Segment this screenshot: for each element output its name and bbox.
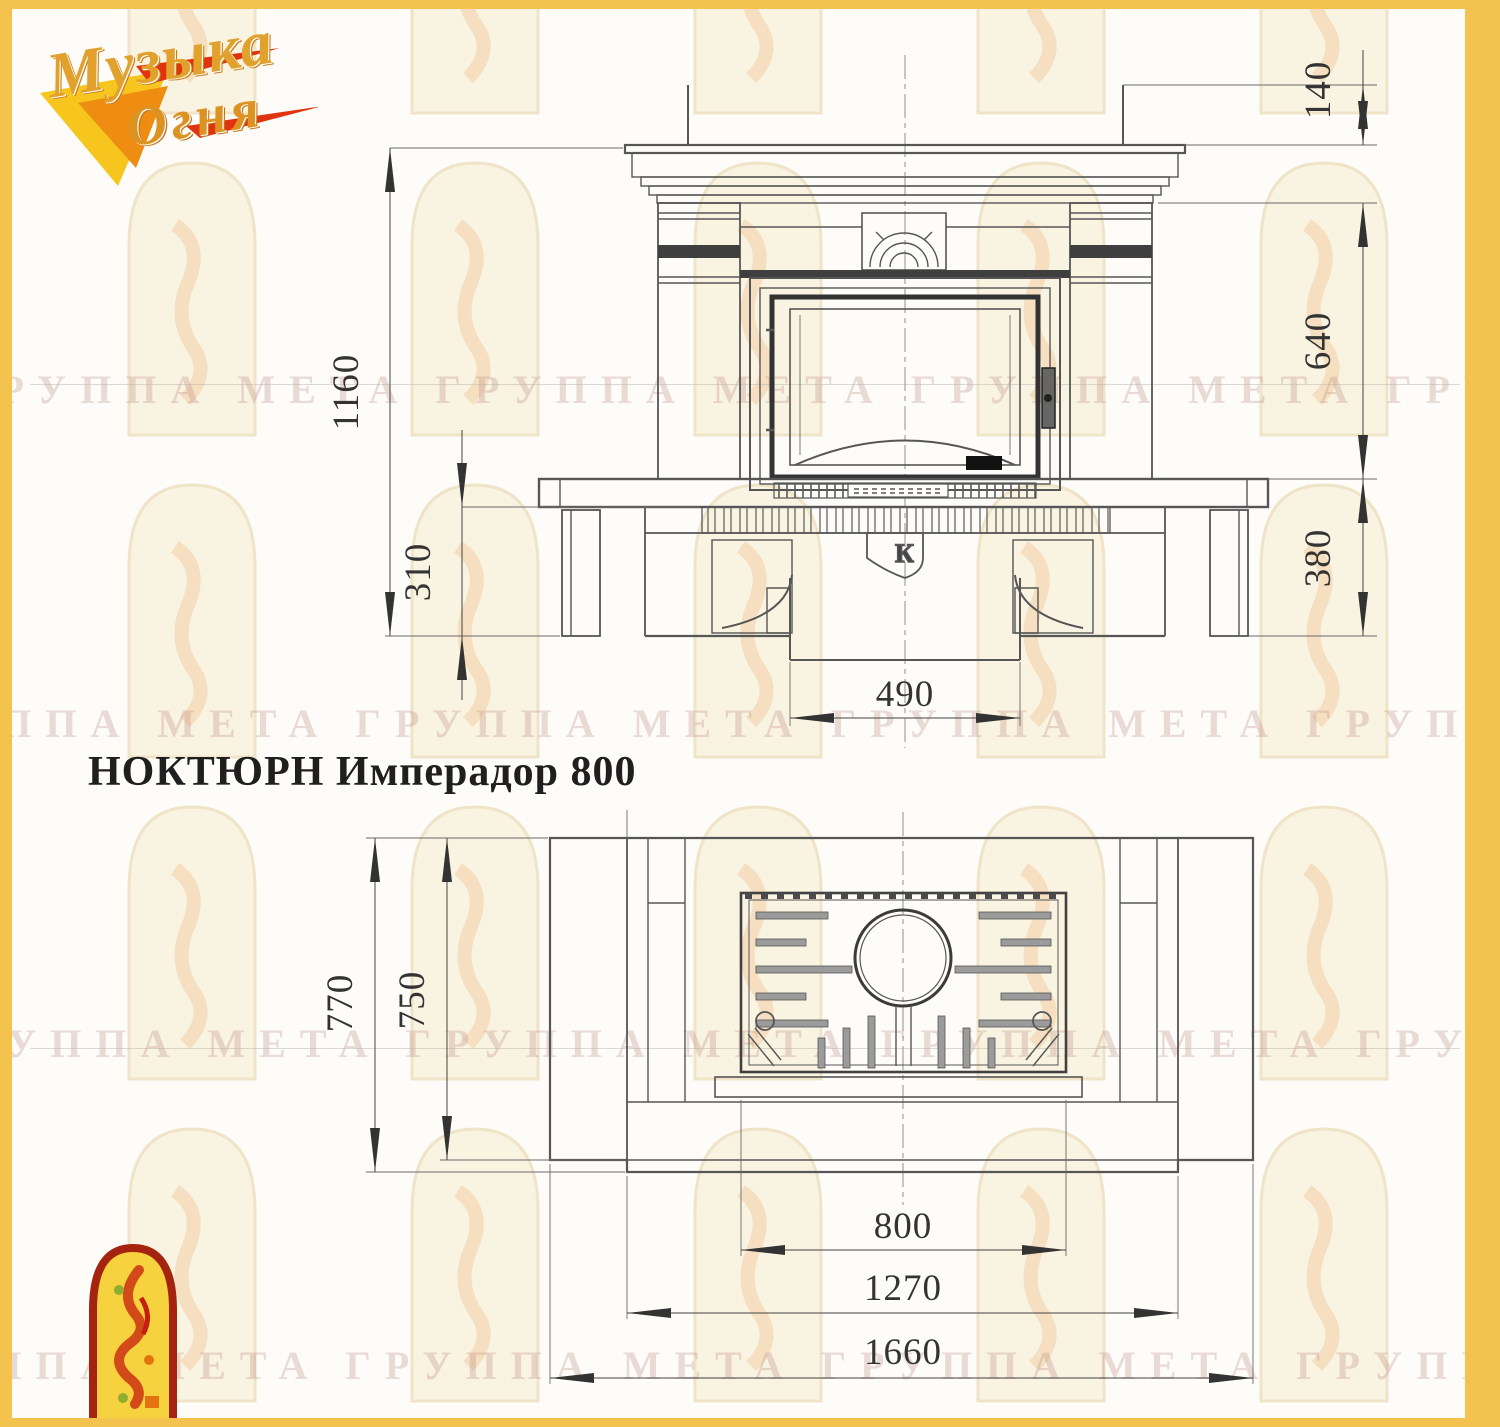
dim-bench-height: 380 xyxy=(1298,529,1339,588)
dim-opening-height: 640 xyxy=(1298,312,1339,371)
technical-drawing: К 1160 310 140 640 380 490 xyxy=(0,0,1500,1427)
dim-body-width: 1270 xyxy=(864,1268,942,1309)
dim-total-height: 1160 xyxy=(326,354,367,431)
border-left xyxy=(0,0,12,1427)
brand-logo: Музыка Огня xyxy=(18,8,318,183)
dim-depth-body: 750 xyxy=(392,971,433,1030)
front-view: К xyxy=(539,55,1268,748)
dim-base-width: 490 xyxy=(876,674,935,715)
border-top xyxy=(0,0,1500,9)
dim-total-width: 1660 xyxy=(864,1332,942,1373)
pedestal-emblem: К xyxy=(895,539,914,568)
border-bottom xyxy=(0,1418,1500,1427)
dim-depth-total: 770 xyxy=(320,974,361,1033)
flame-emblem xyxy=(83,1238,183,1427)
dim-mantel-height: 140 xyxy=(1298,61,1339,120)
border-right xyxy=(1465,0,1500,1427)
dim-base-height: 310 xyxy=(398,543,439,602)
scanned-drawing-page: ГРУППА МЕТА ГРУППА МЕТА ГРУППА МЕТА ГРУП… xyxy=(0,0,1500,1427)
dim-firebox-width: 800 xyxy=(874,1206,933,1247)
front-view-dimensions xyxy=(385,50,1377,726)
page-title: НОКТЮРН Имперадор 800 xyxy=(88,748,637,796)
plan-view xyxy=(550,810,1253,1205)
